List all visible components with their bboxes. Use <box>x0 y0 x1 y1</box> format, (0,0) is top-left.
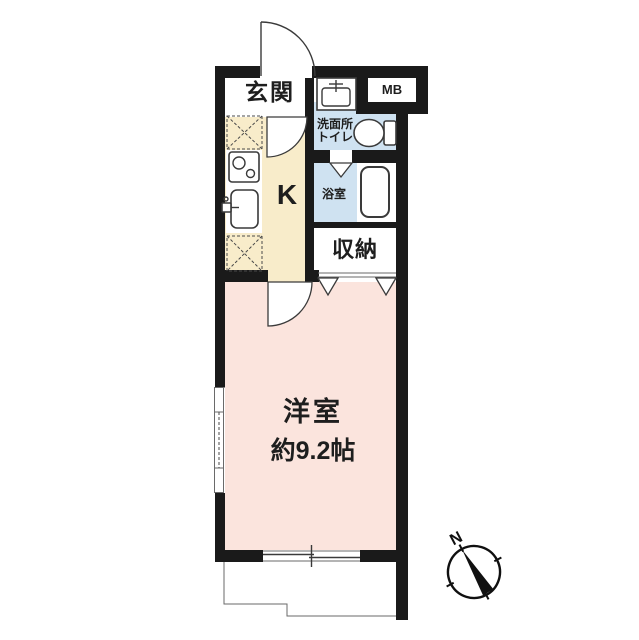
storage-opening <box>318 273 396 295</box>
room-door-swing <box>268 282 312 326</box>
plan-linework: N <box>0 0 639 640</box>
washbasin-icon <box>317 78 356 110</box>
room-area-label: 約9.2帖 <box>253 437 373 467</box>
bathroom-folding-door <box>330 163 352 177</box>
stove-icon <box>229 152 259 182</box>
bathtub-icon <box>361 167 389 217</box>
entrance-door-swing <box>261 22 315 76</box>
compass-north-label: N <box>447 529 465 549</box>
washroom-toilet-label: 洗面所 トイレ <box>312 115 358 147</box>
storage-label: 収納 <box>314 237 396 263</box>
compass-icon: N <box>425 517 516 614</box>
balcony-outline <box>224 562 396 616</box>
sliding-window <box>263 545 360 567</box>
entrance-label: 玄関 <box>235 79 305 107</box>
toilet-icon <box>354 120 396 147</box>
washroom-label-line2: トイレ <box>317 131 353 144</box>
floor-plan: N 玄関 MB 洗面所 トイレ K 浴室 収納 洋室 約9.2帖 <box>0 0 639 640</box>
lower-cabinet-icon <box>227 236 262 271</box>
bathroom-label: 浴室 <box>316 187 352 203</box>
kitchen-door-swing <box>267 117 307 157</box>
meter-box-label: MB <box>368 79 416 101</box>
room-name-label: 洋室 <box>263 397 363 429</box>
upper-cabinet-icon <box>227 116 262 149</box>
kitchen-label: K <box>272 178 302 212</box>
side-window <box>214 387 225 493</box>
